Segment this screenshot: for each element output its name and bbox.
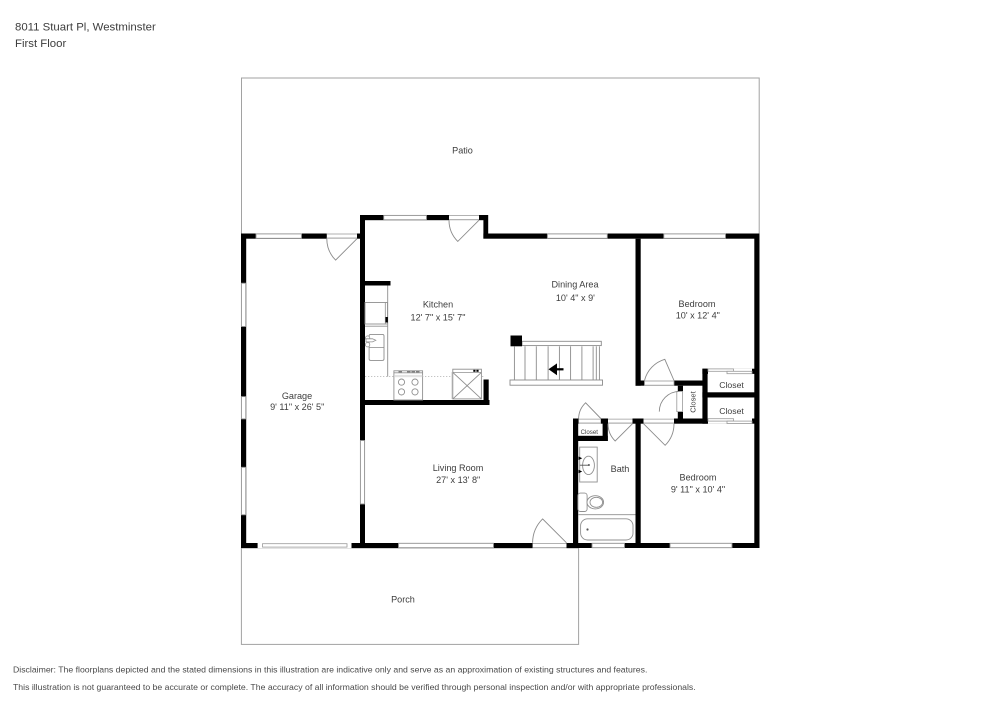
svg-text:Living Room: Living Room (433, 463, 484, 473)
svg-text:Disclaimer: The floorplans dep: Disclaimer: The floorplans depicted and … (13, 664, 647, 674)
svg-text:Kitchen: Kitchen (423, 300, 453, 310)
svg-text:Bath: Bath (611, 464, 630, 474)
svg-text:Closet: Closet (581, 429, 599, 436)
svg-text:Bedroom: Bedroom (680, 473, 717, 483)
svg-text:10' 4" x 9': 10' 4" x 9' (556, 293, 595, 303)
svg-text:8011 Stuart Pl, Westminster: 8011 Stuart Pl, Westminster (15, 22, 156, 34)
svg-text:First Floor: First Floor (15, 38, 66, 50)
svg-text:This illustration is not guara: This illustration is not guaranteed to b… (13, 682, 696, 692)
svg-text:Porch: Porch (391, 594, 415, 604)
svg-text:27' x 13' 8": 27' x 13' 8" (436, 475, 480, 485)
svg-text:Closet: Closet (719, 406, 744, 416)
svg-text:Closet: Closet (719, 380, 744, 390)
svg-text:9' 11" x 26' 5": 9' 11" x 26' 5" (270, 402, 324, 412)
svg-text:Patio: Patio (452, 146, 473, 156)
svg-text:Dining Area: Dining Area (551, 280, 599, 290)
svg-text:10' x 12' 4": 10' x 12' 4" (676, 310, 720, 320)
svg-text:Closet: Closet (689, 390, 698, 412)
svg-text:Garage: Garage (282, 391, 312, 401)
svg-text:Bedroom: Bedroom (679, 299, 716, 309)
svg-text:12' 7" x 15' 7": 12' 7" x 15' 7" (411, 313, 466, 323)
svg-text:9' 11" x 10' 4": 9' 11" x 10' 4" (671, 485, 725, 495)
